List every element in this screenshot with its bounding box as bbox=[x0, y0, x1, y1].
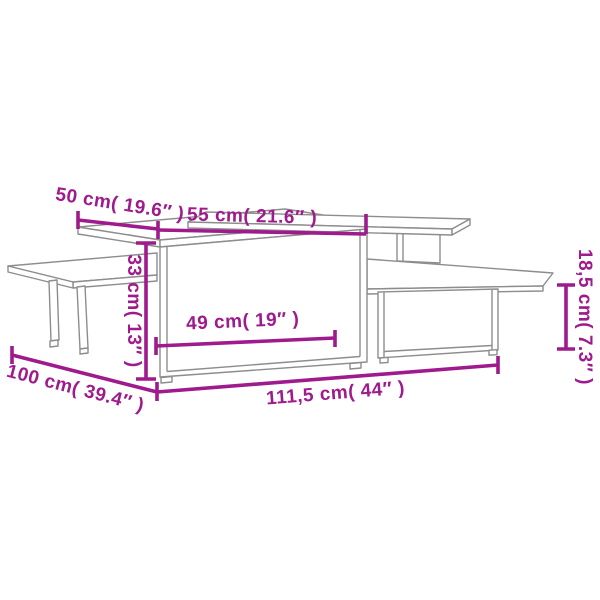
main-table-foot bbox=[350, 363, 361, 369]
right-table-foot bbox=[380, 357, 388, 363]
left-table-foot bbox=[80, 348, 88, 354]
dimension-label-top-depth: 50 cm( 19.6″ ) bbox=[54, 184, 186, 225]
main-table-foot bbox=[161, 377, 172, 383]
main-base-front bbox=[160, 229, 367, 377]
dimension-label-shelf-height: 18,5 cm( 7.3″ ) bbox=[574, 249, 595, 385]
furniture-drawing bbox=[8, 209, 553, 383]
dimension-label-height: 33 cm( 13″ ) bbox=[123, 254, 144, 367]
right-table-base-box bbox=[378, 289, 498, 358]
right-table-top bbox=[367, 259, 553, 289]
product-dimension-diagram: 50 cm( 19.6″ ) 55 cm( 21.6″ ) 33 cm( 13″… bbox=[0, 0, 600, 600]
main-table-base bbox=[160, 229, 367, 383]
right-table-foot bbox=[489, 350, 497, 356]
diagram-canvas: 50 cm( 19.6″ ) 55 cm( 21.6″ ) 33 cm( 13″… bbox=[0, 0, 600, 600]
left-table-foot bbox=[50, 340, 58, 347]
left-table-leg bbox=[77, 286, 88, 349]
dimension-shelf-height-18cm: 18,5 cm( 7.3″ ) bbox=[557, 249, 595, 385]
dimension-label-top-width: 55 cm( 21.6″ ) bbox=[187, 204, 318, 228]
dimension-label-overall-depth: 100 cm( 39.4″ ) bbox=[4, 361, 146, 417]
dimension-top-depth-50cm: 50 cm( 19.6″ ) bbox=[54, 184, 186, 229]
right-table bbox=[367, 259, 553, 363]
left-table-leg bbox=[49, 280, 59, 341]
